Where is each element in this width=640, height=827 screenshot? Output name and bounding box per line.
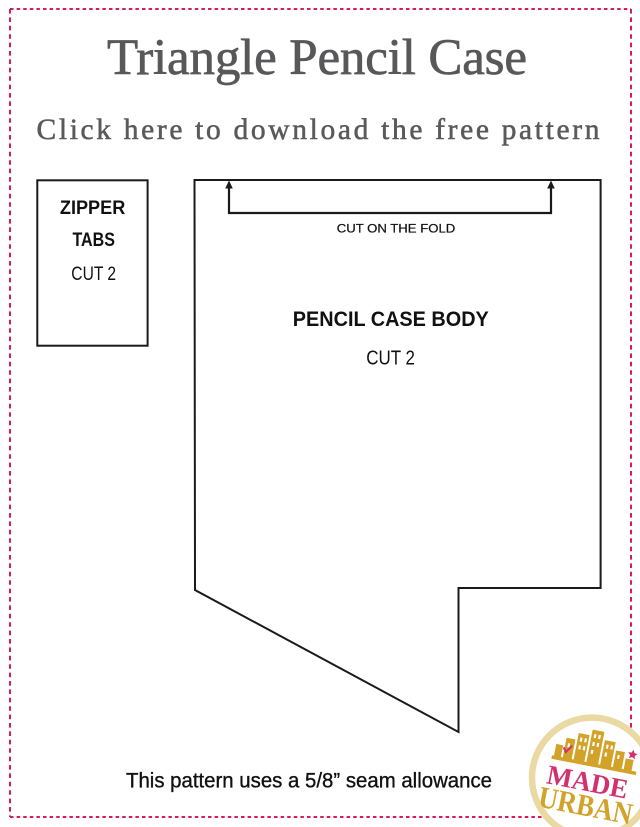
- svg-text:This pattern uses a 5/8” seam: This pattern uses a 5/8” seam allowance: [126, 770, 492, 793]
- svg-text:CUT 2: CUT 2: [71, 264, 116, 285]
- svg-text:CUT ON THE FOLD: CUT ON THE FOLD: [337, 221, 456, 235]
- svg-text:Triangle Pencil Case: Triangle Pencil Case: [107, 30, 527, 86]
- svg-text:ZIPPER: ZIPPER: [60, 198, 126, 219]
- svg-text:PENCIL CASE BODY: PENCIL CASE BODY: [293, 308, 489, 331]
- svg-text:TABS: TABS: [72, 230, 115, 251]
- svg-text:CUT 2: CUT 2: [366, 347, 415, 369]
